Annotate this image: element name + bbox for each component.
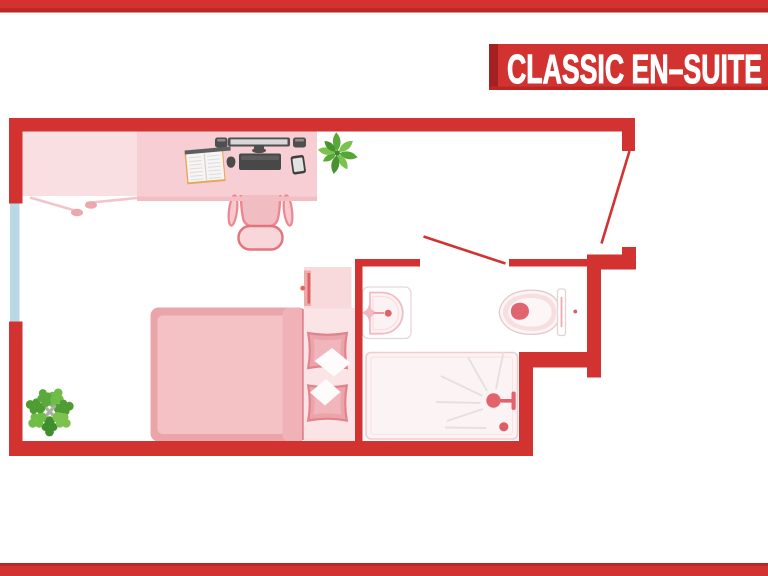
svg-text:CLASSIC EN–SUITE: CLASSIC EN–SUITE — [507, 46, 762, 92]
